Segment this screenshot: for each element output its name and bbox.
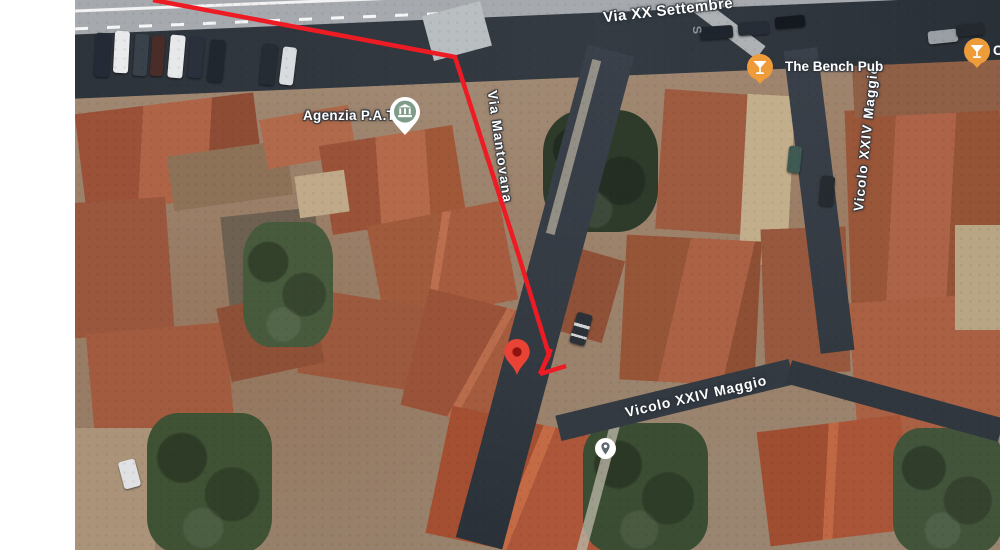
car bbox=[738, 21, 770, 36]
car bbox=[150, 36, 166, 77]
location-pin-icon[interactable] bbox=[595, 438, 616, 464]
cocktail-bar-icon[interactable] bbox=[747, 54, 773, 89]
screenshot-root: { "canvas": { "width": 1000, "height": 5… bbox=[0, 0, 1000, 550]
tree-cluster bbox=[243, 222, 333, 347]
car bbox=[819, 175, 836, 206]
marker-body bbox=[504, 339, 529, 375]
street-label-faint-partial: S bbox=[690, 25, 705, 34]
car bbox=[700, 25, 734, 40]
car bbox=[113, 31, 130, 74]
satellite-map[interactable]: Via XX Settembre Via Mantovana Vicolo XX… bbox=[75, 0, 1000, 550]
museum-pin-icon[interactable] bbox=[390, 97, 420, 140]
roof-patch bbox=[75, 197, 175, 339]
roof-patch bbox=[619, 235, 761, 387]
street-label-via-mantovana: Via Mantovana bbox=[485, 90, 516, 205]
tree-cluster bbox=[893, 428, 1000, 550]
tree-cluster bbox=[147, 413, 272, 550]
poi-label-bench-pub[interactable]: The Bench Pub bbox=[785, 59, 883, 74]
marker-dot bbox=[512, 347, 521, 356]
car bbox=[133, 34, 150, 77]
car bbox=[94, 33, 111, 78]
courtyard bbox=[75, 428, 155, 550]
cocktail-bar-icon[interactable] bbox=[964, 38, 990, 73]
map-marker-pin[interactable] bbox=[504, 339, 530, 380]
poi-label-edge-partial: C bbox=[993, 43, 1000, 58]
courtyard bbox=[294, 170, 349, 219]
car bbox=[956, 23, 985, 37]
roof-patch bbox=[757, 415, 915, 547]
poi-label-agenzia[interactable]: Agenzia P.A.T. bbox=[303, 108, 398, 123]
courtyard bbox=[955, 225, 1000, 330]
